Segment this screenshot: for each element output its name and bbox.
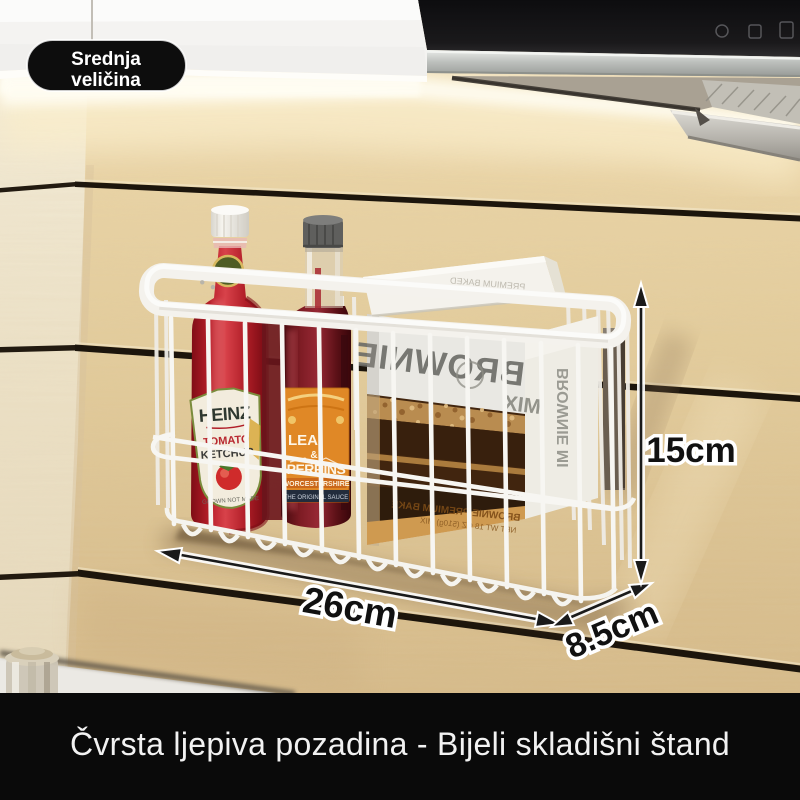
svg-text:WORCESTERSHIRE: WORCESTERSHIRE [283,481,350,488]
svg-text:LEA: LEA [288,432,318,449]
svg-text:THE ORIGINAL SAUCE: THE ORIGINAL SAUCE [284,495,348,501]
svg-text:BROWNIE MI: BROWNIE MI [555,368,572,468]
svg-text:Srednja: Srednja [71,49,141,70]
svg-text:15cm: 15cm [646,431,736,470]
svg-text:veličina: veličina [71,70,141,91]
svg-text:HEINZ: HEINZ [198,402,251,426]
svg-text:Čvrsta ljepiva pozadina - Bije: Čvrsta ljepiva pozadina - Bijeli skladiš… [70,726,730,762]
